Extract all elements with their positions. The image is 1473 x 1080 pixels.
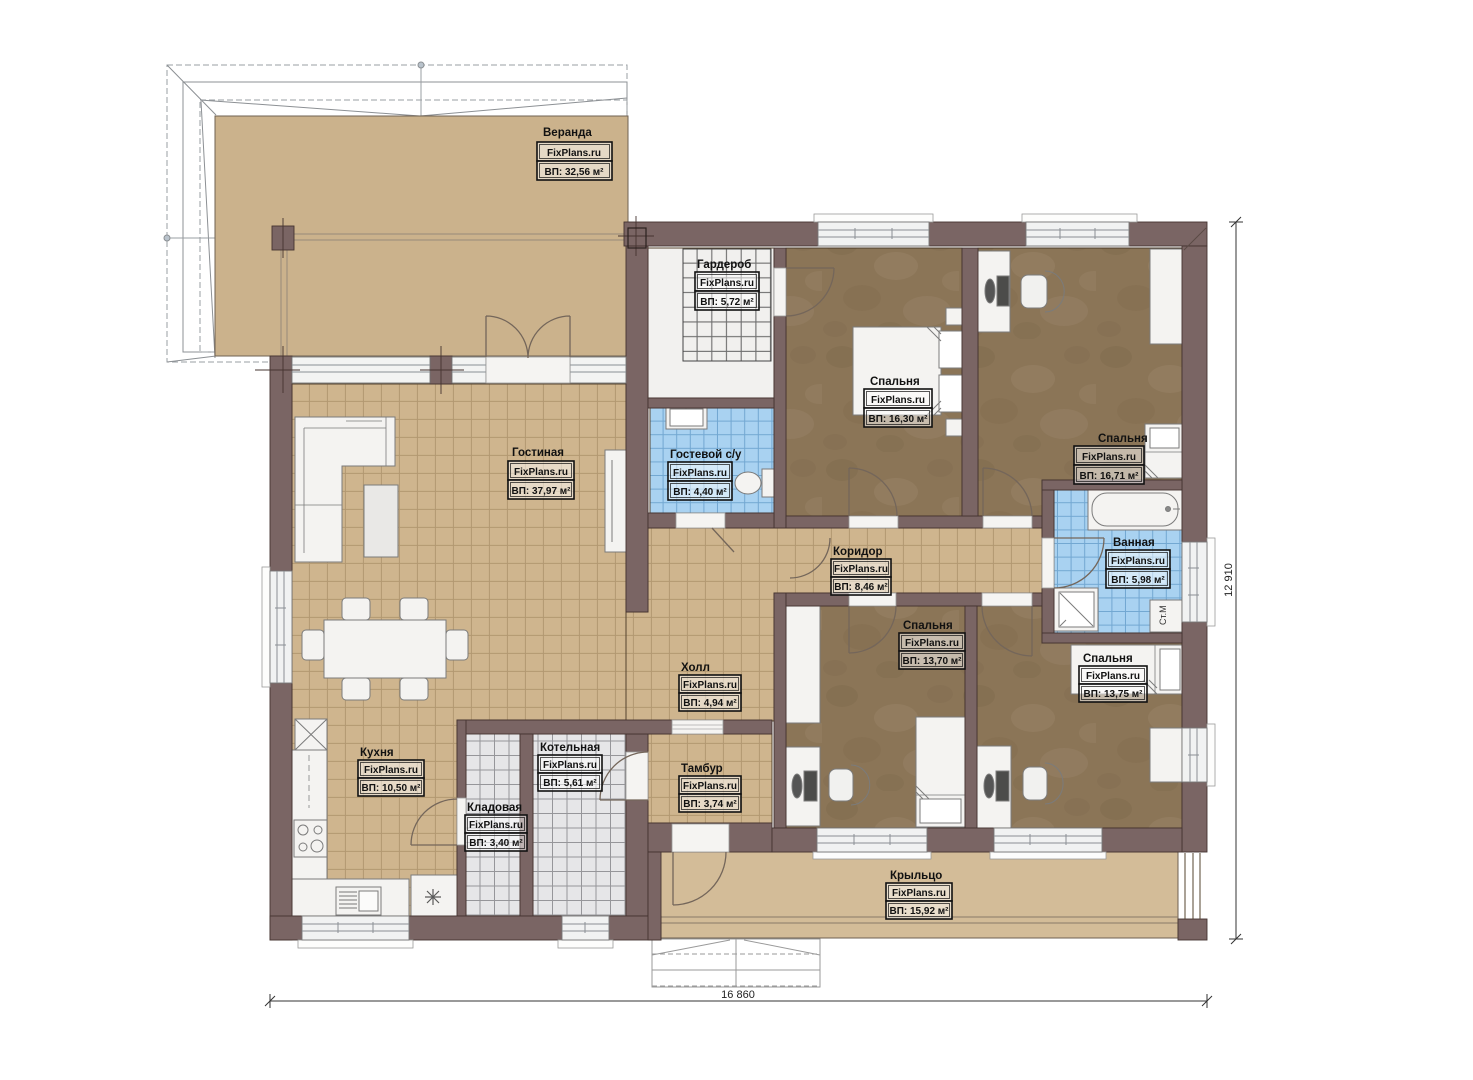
svg-text:ВП: 32,56 м²: ВП: 32,56 м² bbox=[544, 167, 604, 178]
svg-text:Спальня: Спальня bbox=[1083, 653, 1133, 665]
svg-text:FixPlans.ru: FixPlans.ru bbox=[1111, 556, 1165, 567]
svg-text:Гардероб: Гардероб bbox=[697, 259, 751, 271]
svg-text:FixPlans.ru: FixPlans.ru bbox=[683, 680, 737, 691]
svg-text:ВП: 13,75 м²: ВП: 13,75 м² bbox=[1083, 689, 1143, 700]
svg-text:Спальня: Спальня bbox=[1098, 433, 1148, 445]
svg-text:FixPlans.ru: FixPlans.ru bbox=[905, 638, 959, 649]
svg-text:Холл: Холл bbox=[681, 662, 710, 674]
svg-text:FixPlans.ru: FixPlans.ru bbox=[364, 765, 418, 776]
svg-text:FixPlans.ru: FixPlans.ru bbox=[673, 468, 727, 479]
svg-text:ВП: 3,74 м²: ВП: 3,74 м² bbox=[683, 799, 737, 810]
svg-text:Ст.М: Ст.М bbox=[1158, 605, 1168, 625]
svg-text:ВП: 16,30 м²: ВП: 16,30 м² bbox=[868, 414, 928, 425]
svg-text:FixPlans.ru: FixPlans.ru bbox=[700, 278, 754, 289]
svg-text:Крыльцо: Крыльцо bbox=[890, 870, 942, 882]
svg-text:ВП: 4,94 м²: ВП: 4,94 м² bbox=[683, 698, 737, 709]
svg-text:FixPlans.ru: FixPlans.ru bbox=[834, 564, 888, 575]
svg-text:FixPlans.ru: FixPlans.ru bbox=[892, 888, 946, 899]
svg-text:ВП: 16,71 м²: ВП: 16,71 м² bbox=[1079, 471, 1139, 482]
svg-text:FixPlans.ru: FixPlans.ru bbox=[1086, 671, 1140, 682]
svg-text:Котельная: Котельная bbox=[540, 742, 600, 754]
svg-text:FixPlans.ru: FixPlans.ru bbox=[1082, 452, 1136, 463]
svg-text:ВП: 15,92 м²: ВП: 15,92 м² bbox=[889, 906, 949, 917]
svg-text:Коридор: Коридор bbox=[833, 546, 883, 558]
svg-text:ВП: 5,98 м²: ВП: 5,98 м² bbox=[1111, 575, 1165, 586]
svg-text:ВП: 37,97 м²: ВП: 37,97 м² bbox=[511, 486, 571, 497]
svg-text:ВП: 8,46 м²: ВП: 8,46 м² bbox=[834, 582, 888, 593]
svg-text:ВП: 3,40 м²: ВП: 3,40 м² bbox=[469, 838, 523, 849]
svg-text:16 860: 16 860 bbox=[721, 989, 755, 1001]
svg-text:ВП: 13,70 м²: ВП: 13,70 м² bbox=[902, 656, 962, 667]
svg-text:Тамбур: Тамбур bbox=[681, 763, 723, 775]
svg-text:ВП: 10,50 м²: ВП: 10,50 м² bbox=[361, 783, 421, 794]
svg-text:Гостиная: Гостиная bbox=[512, 447, 564, 459]
svg-text:FixPlans.ru: FixPlans.ru bbox=[514, 467, 568, 478]
svg-text:Спальня: Спальня bbox=[903, 620, 953, 632]
svg-text:ВП: 4,40 м²: ВП: 4,40 м² bbox=[673, 487, 727, 498]
svg-text:FixPlans.ru: FixPlans.ru bbox=[871, 395, 925, 406]
svg-text:FixPlans.ru: FixPlans.ru bbox=[683, 781, 737, 792]
svg-text:FixPlans.ru: FixPlans.ru bbox=[543, 760, 597, 771]
svg-text:ВП: 5,61 м²: ВП: 5,61 м² bbox=[543, 778, 597, 789]
svg-text:Кладовая: Кладовая bbox=[467, 802, 522, 814]
svg-text:Ванная: Ванная bbox=[1113, 537, 1155, 549]
svg-text:12 910: 12 910 bbox=[1223, 563, 1235, 597]
svg-text:ВП: 5,72 м²: ВП: 5,72 м² bbox=[700, 297, 754, 308]
svg-text:Спальня: Спальня bbox=[870, 376, 920, 388]
svg-text:Кухня: Кухня bbox=[360, 747, 394, 759]
svg-text:FixPlans.ru: FixPlans.ru bbox=[469, 820, 523, 831]
svg-text:Веранда: Веранда bbox=[543, 127, 592, 139]
svg-text:FixPlans.ru: FixPlans.ru bbox=[547, 148, 601, 159]
svg-text:Гостевой с/у: Гостевой с/у bbox=[670, 449, 742, 461]
